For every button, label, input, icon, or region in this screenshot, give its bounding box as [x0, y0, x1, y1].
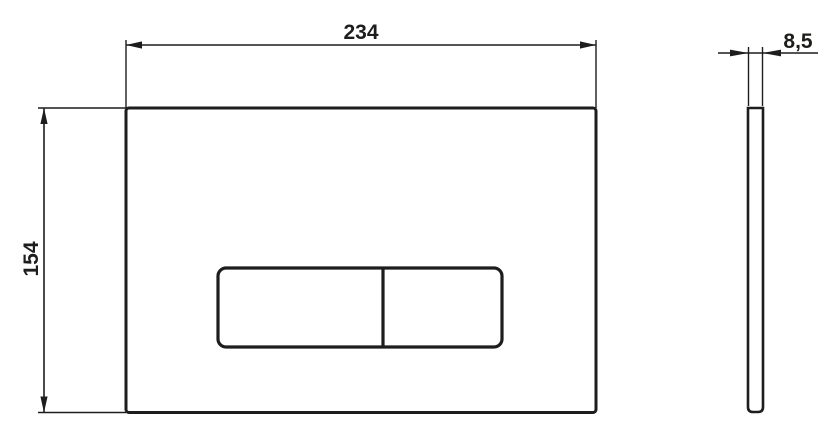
dim-height: 154 — [20, 108, 126, 413]
dim-width: 234 — [126, 21, 596, 108]
side-view — [748, 108, 763, 412]
dim-thickness-arrow-right-icon — [763, 50, 782, 57]
dim-thickness-value: 8,5 — [783, 30, 813, 53]
button-panel-outline — [218, 268, 502, 347]
dim-height-value: 154 — [20, 241, 43, 276]
dim-height-arrow-top-icon — [40, 108, 47, 124]
dim-width-arrow-left-icon — [126, 41, 142, 48]
dim-width-arrow-right-icon — [580, 41, 596, 48]
dim-thickness: 8,5 — [718, 30, 818, 106]
front-view — [126, 108, 596, 413]
drawing-canvas: 234 154 8,5 — [0, 0, 836, 445]
plate-outline — [126, 108, 596, 413]
side-profile — [748, 108, 763, 412]
technical-drawing: 234 154 8,5 — [0, 0, 836, 445]
dim-thickness-arrow-left-icon — [730, 50, 749, 57]
dim-width-value: 234 — [343, 21, 378, 44]
dim-height-arrow-bottom-icon — [40, 397, 47, 413]
